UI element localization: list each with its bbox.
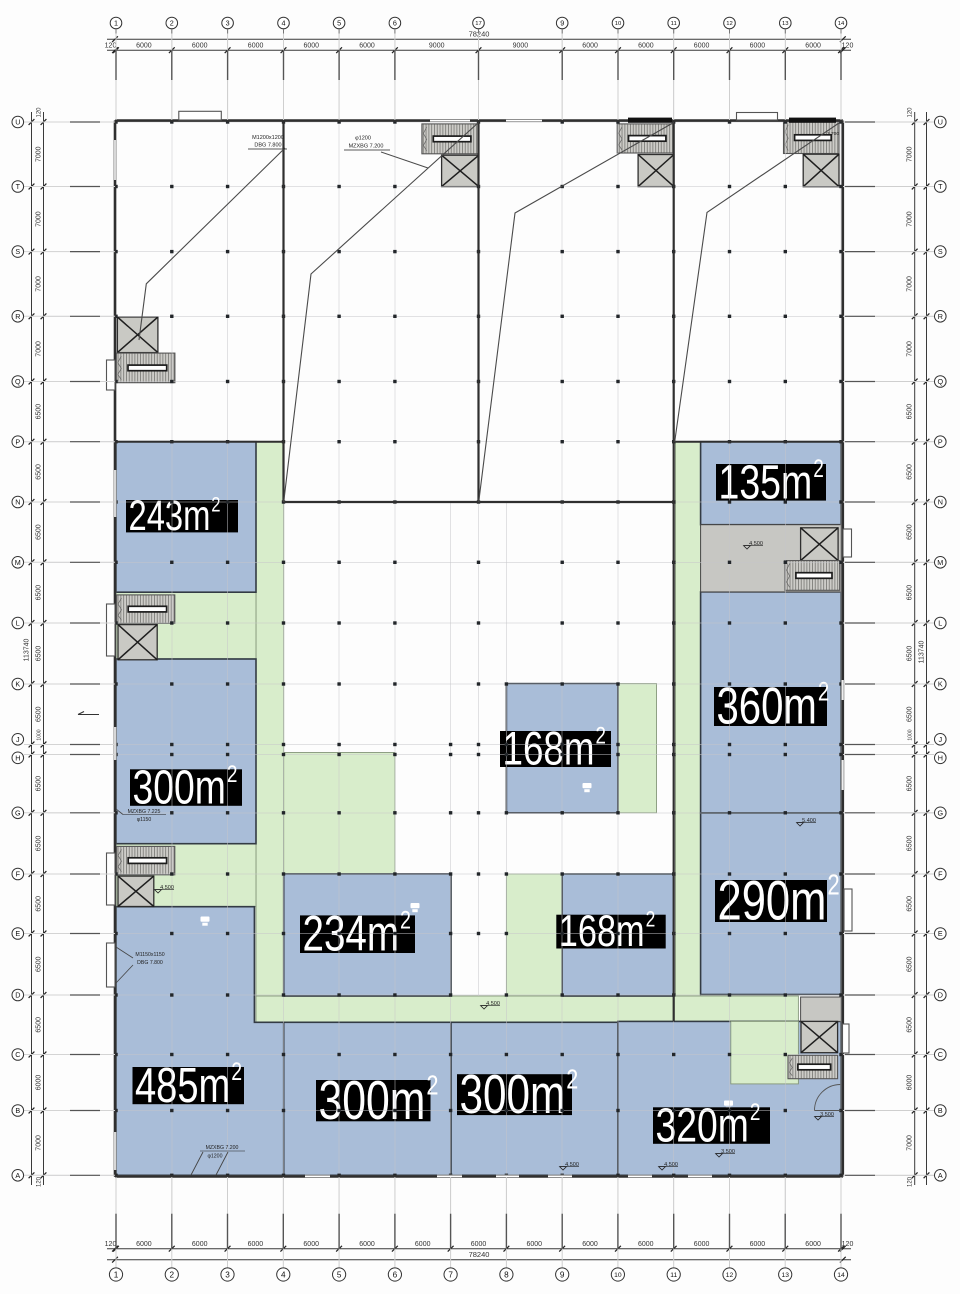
svg-text:9: 9 [560, 1271, 565, 1280]
svg-text:F: F [16, 870, 21, 879]
svg-text:N: N [15, 498, 20, 507]
svg-text:DBG 7.800: DBG 7.800 [254, 143, 281, 149]
svg-text:2: 2 [227, 760, 238, 788]
svg-text:3.500: 3.500 [721, 1149, 735, 1155]
svg-text:17: 17 [475, 21, 482, 27]
svg-text:243m: 243m [129, 493, 211, 540]
svg-text:13: 13 [781, 1272, 789, 1279]
svg-text:6000: 6000 [359, 1241, 375, 1248]
svg-text:6000: 6000 [192, 43, 208, 50]
svg-text:MZXBG 7.225: MZXBG 7.225 [128, 809, 161, 815]
svg-text:P: P [938, 437, 943, 446]
svg-text:6500: 6500 [907, 956, 914, 972]
svg-text:φ1200: φ1200 [355, 136, 371, 142]
svg-text:φ1200: φ1200 [208, 1154, 223, 1160]
svg-text:MZXBG 7.200: MZXBG 7.200 [349, 144, 384, 150]
svg-text:S: S [938, 247, 943, 256]
svg-text:120: 120 [105, 43, 117, 50]
svg-text:7000: 7000 [907, 276, 914, 292]
svg-text:300m: 300m [460, 1065, 566, 1125]
svg-text:7: 7 [448, 1271, 453, 1280]
svg-text:7000: 7000 [36, 146, 43, 162]
svg-text:8: 8 [504, 1271, 509, 1280]
svg-text:G: G [15, 808, 21, 817]
svg-text:168m: 168m [503, 722, 595, 775]
svg-text:6000: 6000 [192, 1241, 208, 1248]
svg-text:135m: 135m [719, 456, 813, 510]
svg-text:6500: 6500 [907, 776, 914, 792]
svg-text:1: 1 [114, 19, 118, 28]
svg-text:9: 9 [560, 19, 564, 28]
svg-text:P: P [15, 437, 20, 446]
svg-text:6000: 6000 [527, 1241, 543, 1248]
svg-text:φ1150: φ1150 [137, 817, 152, 823]
svg-text:168m: 168m [559, 907, 645, 956]
svg-text:6000: 6000 [304, 43, 320, 50]
svg-text:6000: 6000 [36, 1075, 43, 1091]
svg-text:6000: 6000 [805, 43, 821, 50]
svg-text:300m: 300m [319, 1070, 426, 1131]
svg-text:120: 120 [908, 107, 914, 118]
svg-text:6500: 6500 [907, 464, 914, 480]
svg-text:J: J [16, 735, 20, 744]
svg-text:B: B [15, 1106, 20, 1115]
svg-text:2: 2 [813, 454, 824, 482]
svg-text:2: 2 [818, 678, 829, 707]
svg-text:M: M [937, 558, 943, 567]
svg-text:2: 2 [646, 908, 656, 933]
svg-text:9000: 9000 [429, 43, 445, 50]
svg-text:D: D [938, 991, 943, 1000]
svg-text:D: D [15, 991, 20, 1000]
svg-text:120: 120 [37, 107, 43, 118]
svg-text:3.500: 3.500 [820, 1112, 834, 1118]
svg-text:T: T [938, 182, 943, 191]
svg-text:C: C [938, 1050, 943, 1059]
svg-text:6500: 6500 [36, 896, 43, 912]
svg-text:U: U [938, 118, 943, 127]
svg-text:L: L [938, 619, 942, 628]
svg-text:E: E [15, 929, 20, 938]
svg-text:6500: 6500 [36, 1017, 43, 1033]
svg-text:L: L [16, 619, 20, 628]
svg-text:11: 11 [671, 21, 677, 27]
svg-text:2: 2 [566, 1064, 578, 1095]
svg-text:6000: 6000 [582, 1241, 598, 1248]
svg-text:6500: 6500 [36, 836, 43, 852]
svg-text:R: R [938, 312, 943, 321]
svg-text:7000: 7000 [36, 276, 43, 292]
svg-text:6500: 6500 [907, 404, 914, 420]
svg-text:6500: 6500 [36, 585, 43, 601]
svg-text:J: J [939, 735, 943, 744]
svg-text:M: M [15, 558, 21, 567]
svg-text:6000: 6000 [471, 1241, 487, 1248]
svg-text:14: 14 [838, 21, 845, 27]
svg-text:2: 2 [426, 1070, 438, 1101]
svg-text:M1200x1200: M1200x1200 [252, 135, 284, 141]
svg-text:7000: 7000 [907, 1135, 914, 1151]
svg-text:6000: 6000 [582, 43, 598, 50]
svg-text:6000: 6000 [694, 1241, 710, 1248]
svg-text:120: 120 [105, 1241, 117, 1248]
svg-text:6000: 6000 [694, 43, 710, 50]
svg-text:1000: 1000 [37, 729, 43, 740]
svg-text:120: 120 [842, 1241, 854, 1248]
svg-text:6000: 6000 [359, 43, 375, 50]
svg-text:6500: 6500 [36, 776, 43, 792]
svg-text:2: 2 [231, 1058, 242, 1086]
svg-text:6000: 6000 [303, 1241, 319, 1248]
svg-text:13: 13 [782, 21, 789, 27]
svg-text:3: 3 [225, 1271, 230, 1280]
svg-text:485m: 485m [135, 1058, 230, 1113]
svg-text:6000: 6000 [638, 43, 654, 50]
svg-text:A: A [15, 1171, 20, 1180]
svg-text:5: 5 [337, 1271, 342, 1280]
svg-text:78240: 78240 [469, 1250, 490, 1259]
svg-text:6000: 6000 [750, 43, 766, 50]
svg-text:3.700: 3.700 [827, 131, 839, 137]
svg-text:14: 14 [837, 1272, 845, 1279]
svg-text:6500: 6500 [907, 524, 914, 540]
svg-text:6500: 6500 [36, 464, 43, 480]
svg-text:R: R [15, 312, 20, 321]
svg-text:M1150x1150: M1150x1150 [135, 952, 164, 958]
svg-text:6500: 6500 [36, 706, 43, 722]
svg-text:300m: 300m [133, 761, 226, 815]
svg-text:6500: 6500 [907, 706, 914, 722]
svg-text:K: K [15, 680, 20, 689]
svg-text:E: E [938, 929, 943, 938]
svg-text:6500: 6500 [36, 404, 43, 420]
svg-text:G: G [938, 808, 944, 817]
svg-text:6000: 6000 [638, 1241, 654, 1248]
svg-text:K: K [938, 680, 943, 689]
svg-text:A: A [938, 1171, 943, 1180]
svg-text:10: 10 [614, 1272, 622, 1279]
svg-text:120: 120 [908, 1176, 914, 1187]
svg-text:113740: 113740 [24, 638, 31, 661]
svg-text:234m: 234m [303, 907, 399, 962]
svg-text:4.500: 4.500 [565, 1162, 579, 1168]
svg-text:7000: 7000 [907, 211, 914, 227]
svg-text:H: H [15, 753, 20, 762]
svg-text:4: 4 [282, 19, 286, 28]
svg-text:6500: 6500 [36, 646, 43, 662]
svg-text:6500: 6500 [907, 646, 914, 662]
svg-text:7000: 7000 [36, 1135, 43, 1151]
svg-text:Q: Q [938, 377, 944, 386]
svg-text:2: 2 [170, 1271, 175, 1280]
svg-text:3: 3 [226, 19, 230, 28]
svg-text:9000: 9000 [513, 43, 529, 50]
svg-text:6500: 6500 [907, 896, 914, 912]
svg-text:11: 11 [670, 1272, 677, 1279]
svg-text:T: T [16, 182, 21, 191]
svg-text:7000: 7000 [907, 341, 914, 357]
svg-text:6000: 6000 [907, 1075, 914, 1091]
svg-text:120: 120 [842, 43, 854, 50]
svg-text:6000: 6000 [248, 1241, 264, 1248]
svg-text:7000: 7000 [36, 211, 43, 227]
svg-text:6000: 6000 [136, 1241, 152, 1248]
svg-text:290m: 290m [718, 869, 827, 932]
svg-text:10: 10 [615, 21, 622, 27]
svg-text:6500: 6500 [907, 836, 914, 852]
svg-text:6000: 6000 [750, 1241, 766, 1248]
svg-text:DBG 7.800: DBG 7.800 [137, 960, 163, 966]
svg-text:6500: 6500 [36, 956, 43, 972]
svg-text:1: 1 [114, 1271, 119, 1280]
svg-text:1000: 1000 [908, 729, 914, 740]
svg-text:U: U [15, 118, 20, 127]
svg-text:MZXBG 7.200: MZXBG 7.200 [206, 1145, 239, 1151]
svg-text:H: H [938, 753, 943, 762]
svg-text:F: F [938, 870, 943, 879]
svg-text:N: N [938, 498, 943, 507]
svg-text:113740: 113740 [919, 640, 926, 663]
svg-text:4.500: 4.500 [664, 1162, 678, 1168]
svg-text:6500: 6500 [907, 585, 914, 601]
svg-text:12: 12 [726, 21, 733, 27]
svg-text:2: 2 [211, 493, 220, 516]
svg-text:Q: Q [15, 377, 21, 386]
svg-text:7000: 7000 [907, 146, 914, 162]
svg-text:2: 2 [750, 1098, 761, 1126]
svg-text:S: S [15, 247, 20, 256]
svg-text:360m: 360m [717, 677, 817, 735]
svg-text:6000: 6000 [805, 1241, 821, 1248]
svg-text:2: 2 [827, 870, 839, 901]
svg-text:7000: 7000 [36, 341, 43, 357]
svg-text:120: 120 [37, 1176, 43, 1187]
svg-text:B: B [938, 1106, 943, 1115]
svg-text:2: 2 [400, 905, 411, 934]
svg-text:5: 5 [337, 19, 341, 28]
svg-text:6000: 6000 [136, 43, 152, 50]
svg-text:C: C [15, 1050, 20, 1059]
svg-text:320m: 320m [656, 1099, 749, 1153]
svg-text:6000: 6000 [248, 43, 264, 50]
svg-text:4: 4 [281, 1271, 286, 1280]
svg-text:2: 2 [170, 19, 174, 28]
svg-text:6500: 6500 [907, 1017, 914, 1033]
svg-text:6: 6 [393, 19, 397, 28]
svg-text:12: 12 [726, 1272, 734, 1279]
svg-text:6000: 6000 [415, 1241, 431, 1248]
svg-text:6500: 6500 [36, 524, 43, 540]
svg-text:6: 6 [393, 1271, 398, 1280]
